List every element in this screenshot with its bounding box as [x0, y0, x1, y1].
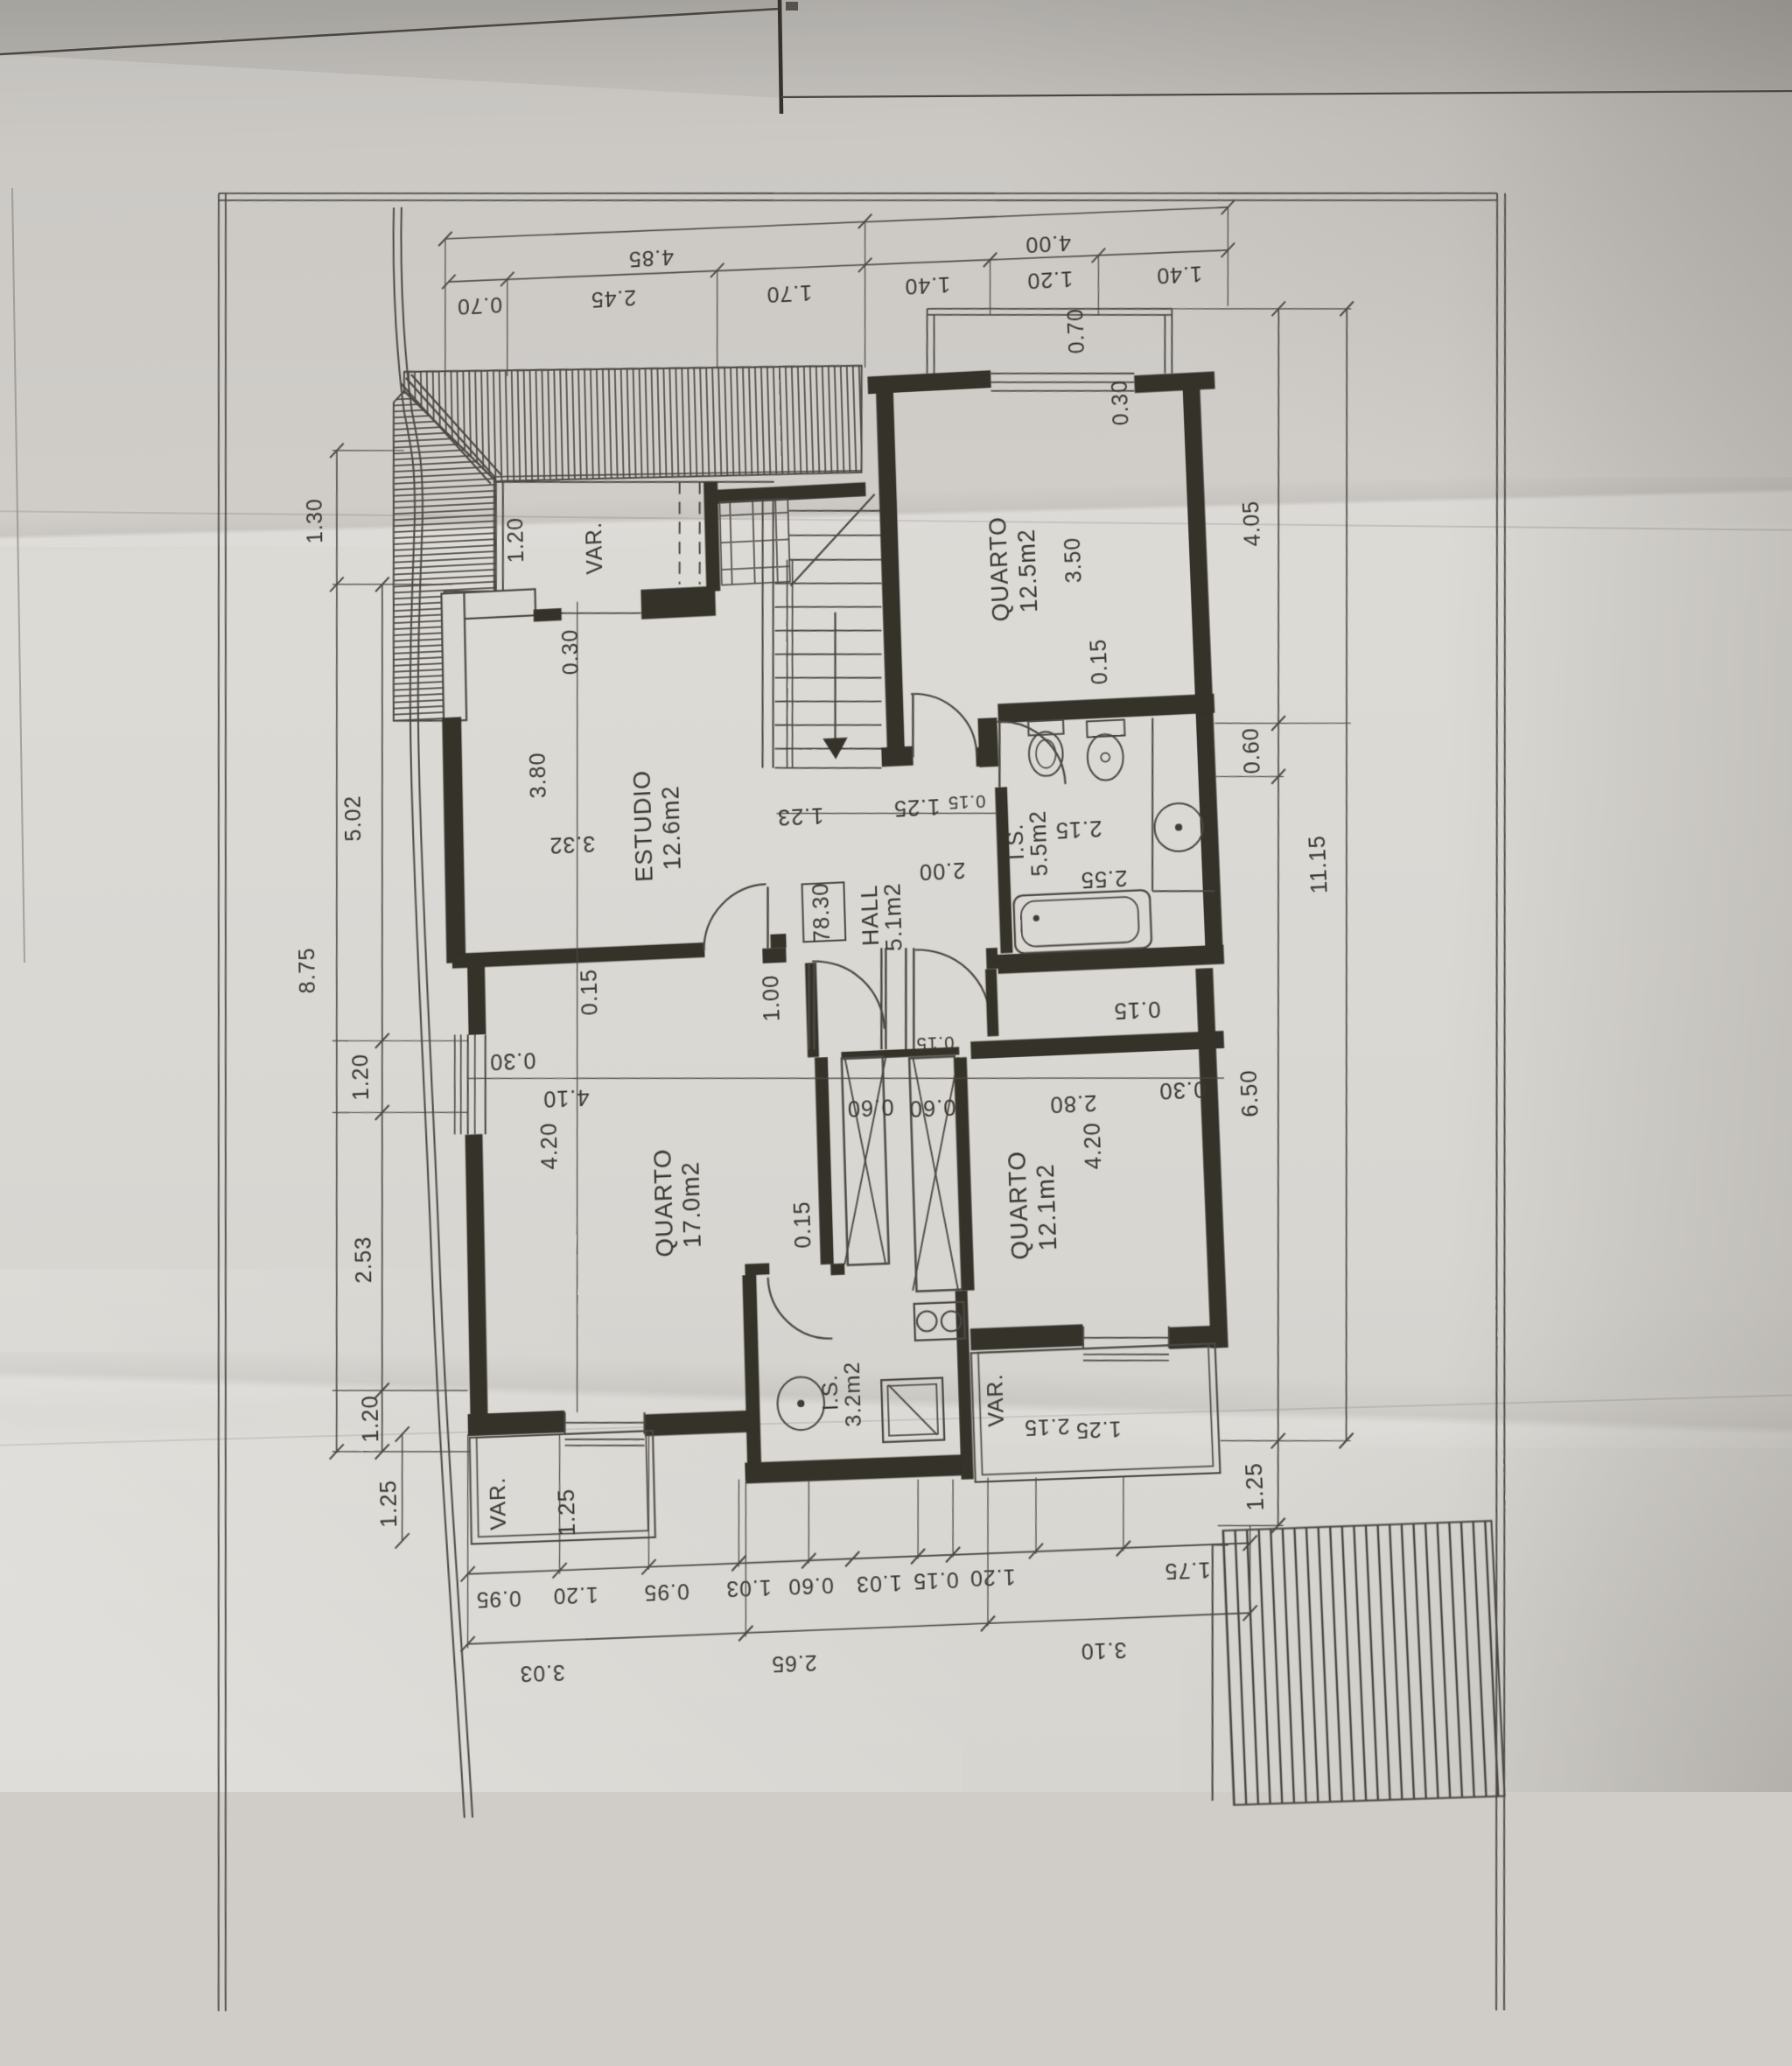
svg-text:1.25: 1.25 [555, 1488, 581, 1537]
svg-text:2.65: 2.65 [771, 1650, 817, 1677]
svg-text:0.60: 0.60 [846, 1094, 894, 1121]
svg-text:4.10: 4.10 [542, 1084, 590, 1111]
svg-text:0.30: 0.30 [1158, 1075, 1207, 1103]
svg-text:0.30: 0.30 [489, 1047, 536, 1075]
svg-text:1.75: 1.75 [1164, 1558, 1211, 1585]
svg-text:1.25: 1.25 [1075, 1417, 1123, 1443]
svg-text:0.95: 0.95 [476, 1586, 522, 1612]
svg-text:1.03: 1.03 [725, 1575, 772, 1601]
svg-text:QUARTO: QUARTO [650, 1148, 679, 1257]
svg-text:0.60: 0.60 [787, 1572, 834, 1599]
svg-text:0.95: 0.95 [643, 1579, 689, 1605]
svg-text:2.80: 2.80 [1049, 1089, 1097, 1117]
svg-text:0.15: 0.15 [913, 1567, 959, 1594]
svg-text:QUARTO: QUARTO [1004, 1150, 1033, 1260]
svg-text:1.25: 1.25 [1242, 1461, 1270, 1511]
svg-text:VAR.: VAR. [486, 1476, 511, 1530]
svg-text:VAR.: VAR. [982, 1373, 1008, 1427]
svg-text:4.20: 4.20 [1080, 1122, 1107, 1171]
svg-text:3.2m2: 3.2m2 [839, 1361, 865, 1427]
svg-text:6.50: 6.50 [1236, 1069, 1263, 1118]
svg-text:0.60: 0.60 [908, 1094, 956, 1121]
svg-text:1.20: 1.20 [358, 1394, 383, 1443]
svg-text:12.1m2: 12.1m2 [1032, 1163, 1062, 1251]
svg-text:1.20: 1.20 [552, 1582, 598, 1608]
svg-text:0.15: 0.15 [789, 1201, 815, 1250]
svg-text:4.20: 4.20 [537, 1122, 563, 1170]
svg-text:2.53: 2.53 [351, 1236, 376, 1284]
svg-text:1.25: 1.25 [376, 1479, 402, 1528]
svg-text:3.10: 3.10 [1080, 1638, 1127, 1665]
svg-text:2.15: 2.15 [1024, 1414, 1070, 1440]
svg-text:1.20: 1.20 [348, 1053, 374, 1101]
svg-text:3.03: 3.03 [519, 1660, 565, 1686]
svg-text:1.03: 1.03 [856, 1570, 902, 1597]
svg-text:17.0m2: 17.0m2 [678, 1160, 706, 1248]
svg-text:1.20: 1.20 [969, 1565, 1017, 1592]
